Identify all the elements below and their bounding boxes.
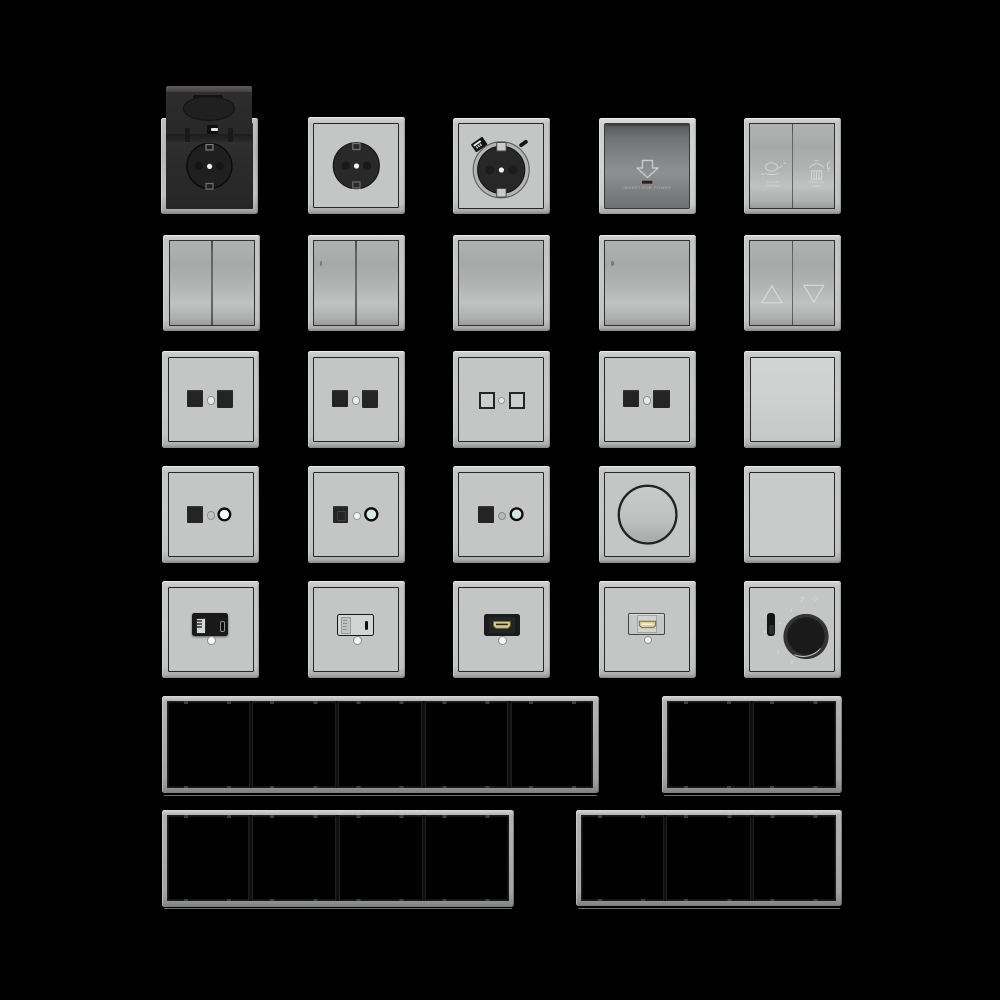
svg-text:4: 4 xyxy=(778,621,781,626)
svg-text:8: 8 xyxy=(791,660,793,665)
svg-text:3: 3 xyxy=(790,608,792,613)
svg-text:2: 2 xyxy=(777,650,779,655)
svg-text:1: 1 xyxy=(763,613,765,618)
svg-text:0: 0 xyxy=(764,629,767,634)
